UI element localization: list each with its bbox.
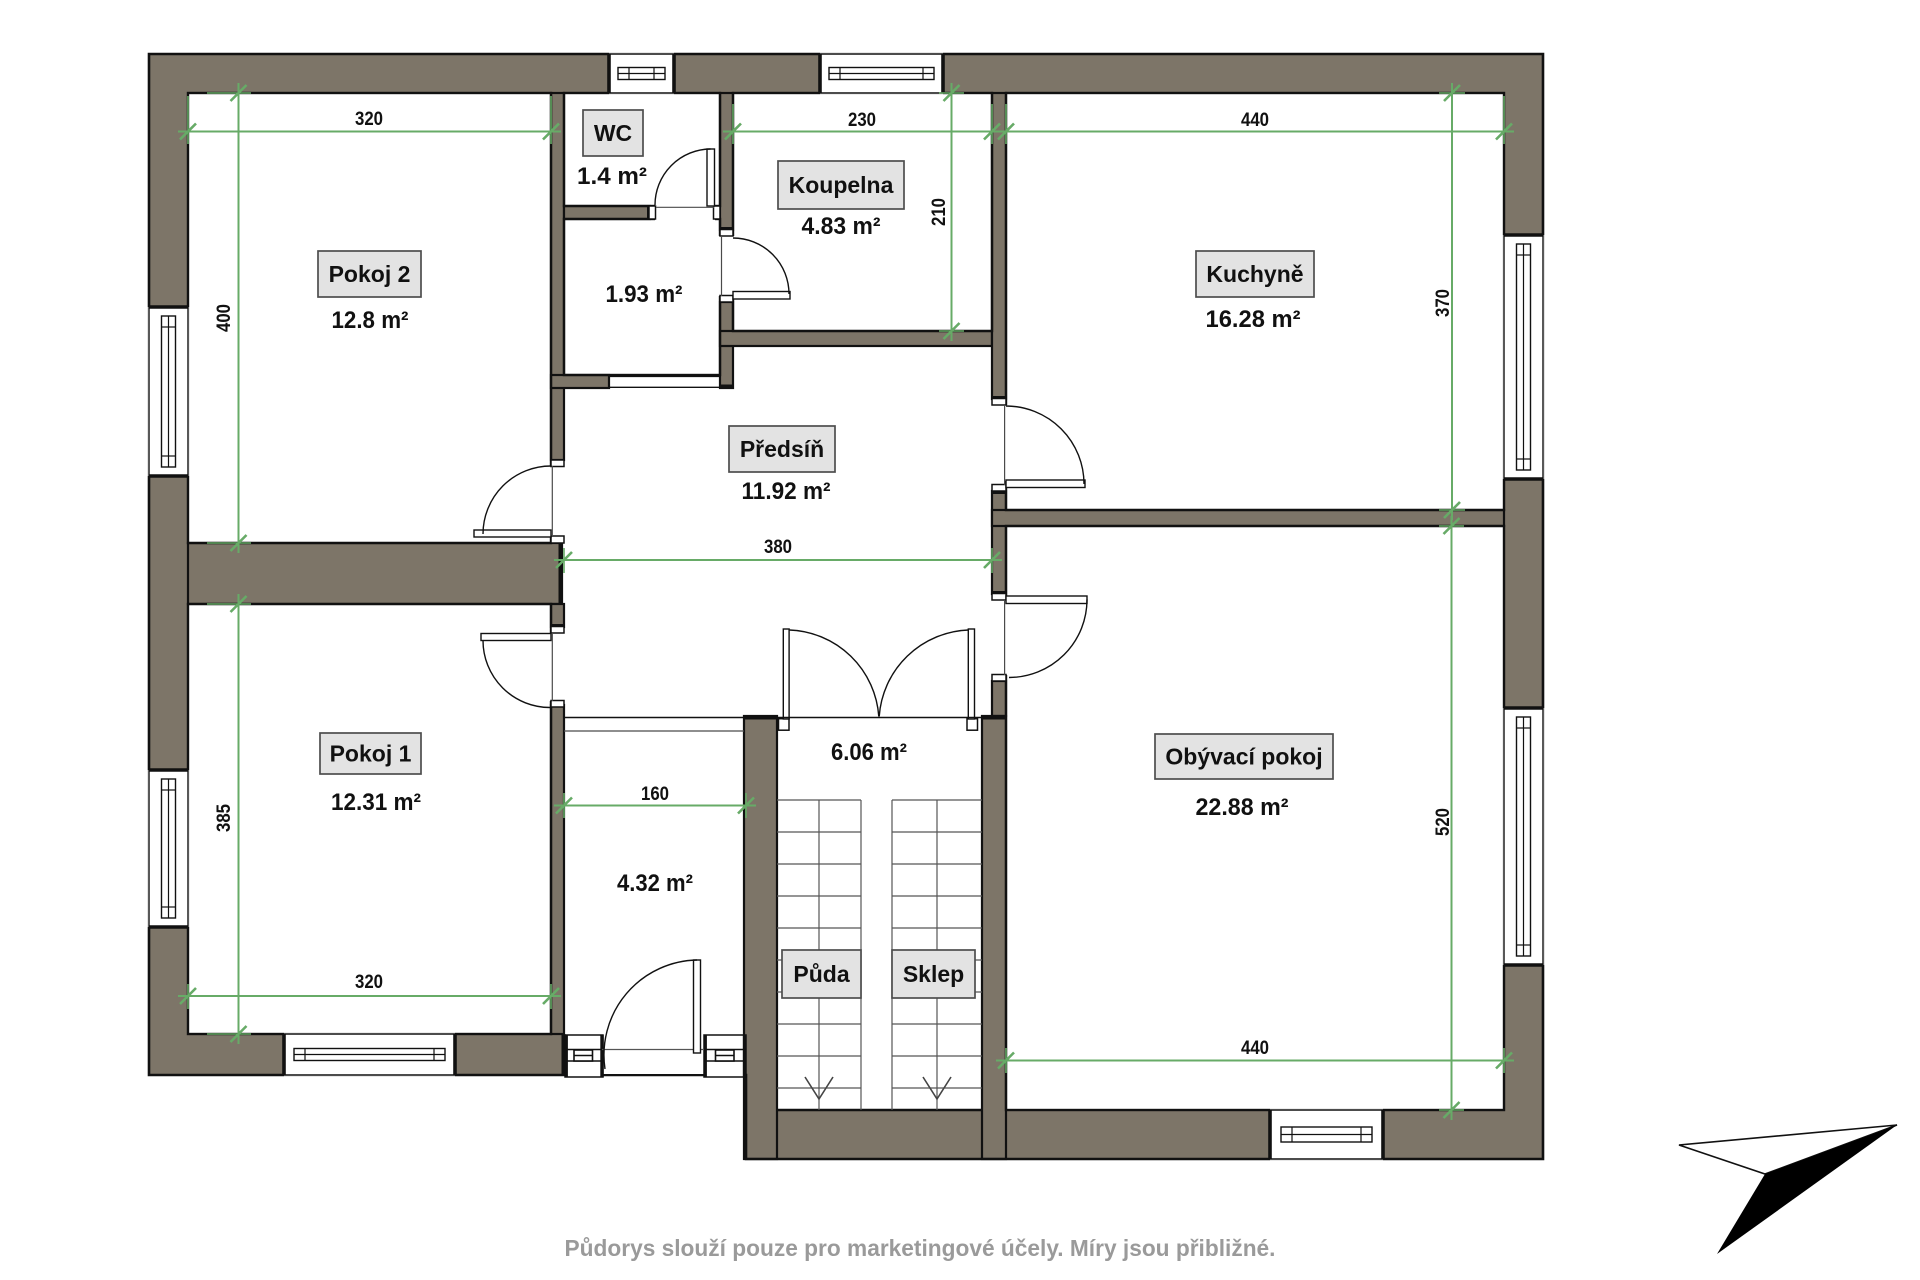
svg-text:Kuchyně: Kuchyně <box>1206 261 1303 287</box>
svg-text:400: 400 <box>214 304 235 332</box>
svg-text:Předsíň: Předsíň <box>740 436 824 462</box>
svg-text:440: 440 <box>1241 110 1269 131</box>
svg-text:Sklep: Sklep <box>903 961 964 987</box>
svg-text:22.88 m²: 22.88 m² <box>1196 794 1289 821</box>
svg-text:520: 520 <box>1433 808 1454 836</box>
svg-text:160: 160 <box>641 784 669 805</box>
svg-text:1.93 m²: 1.93 m² <box>606 281 683 308</box>
svg-text:230: 230 <box>848 110 876 131</box>
svg-text:Půda: Půda <box>793 961 849 987</box>
svg-text:Pokoj 2: Pokoj 2 <box>329 261 411 287</box>
svg-text:320: 320 <box>355 109 383 130</box>
svg-text:320: 320 <box>355 972 383 993</box>
svg-text:6.06 m²: 6.06 m² <box>831 739 907 766</box>
svg-text:380: 380 <box>764 537 792 558</box>
svg-text:12.8 m²: 12.8 m² <box>332 307 409 334</box>
svg-text:WC: WC <box>594 120 632 146</box>
svg-text:210: 210 <box>929 198 950 226</box>
svg-text:1.4 m²: 1.4 m² <box>577 163 647 190</box>
svg-text:Pokoj 1: Pokoj 1 <box>330 741 412 767</box>
svg-text:Koupelna: Koupelna <box>789 172 894 198</box>
svg-text:385: 385 <box>214 804 235 832</box>
svg-text:370: 370 <box>1433 289 1454 317</box>
svg-text:11.92 m²: 11.92 m² <box>742 478 831 505</box>
svg-text:16.28 m²: 16.28 m² <box>1206 306 1301 333</box>
svg-text:4.32 m²: 4.32 m² <box>617 870 693 897</box>
svg-text:12.31 m²: 12.31 m² <box>331 789 421 816</box>
svg-text:Obývací pokoj: Obývací pokoj <box>1165 744 1322 770</box>
svg-text:4.83 m²: 4.83 m² <box>802 213 881 240</box>
svg-text:440: 440 <box>1241 1038 1269 1059</box>
svg-text:Půdorys slouží pouze pro marke: Půdorys slouží pouze pro marketingové úč… <box>565 1235 1276 1261</box>
